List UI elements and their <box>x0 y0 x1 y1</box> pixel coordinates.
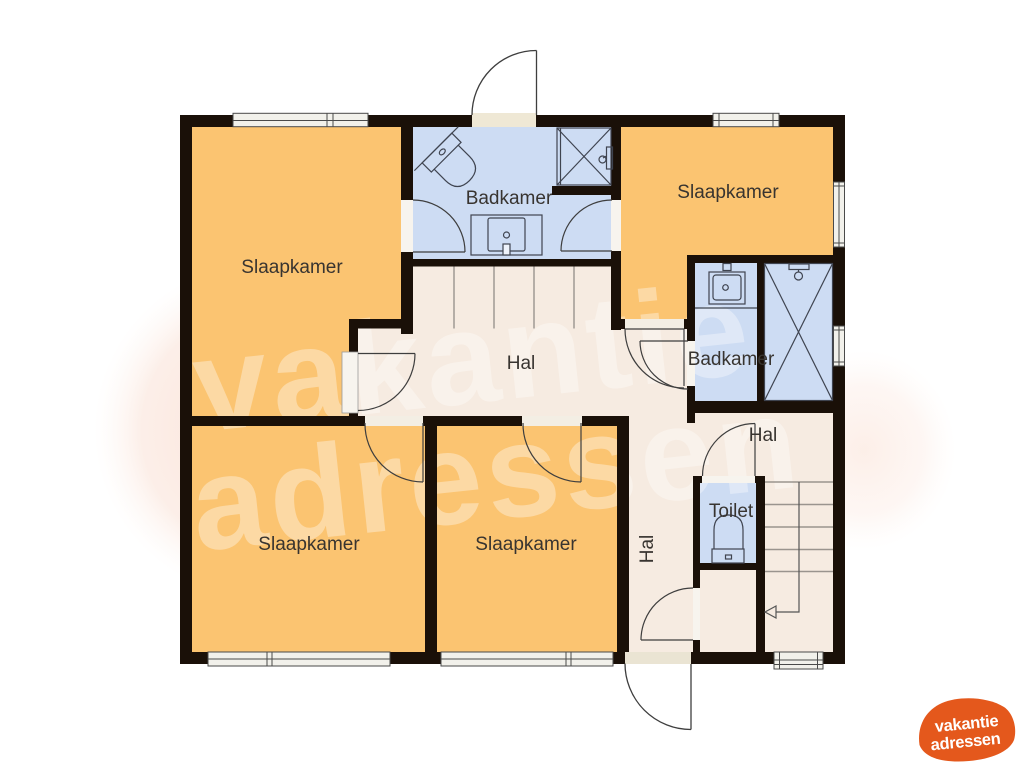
svg-text:Badkamer: Badkamer <box>688 349 775 370</box>
svg-text:Slaapkamer: Slaapkamer <box>677 182 779 203</box>
svg-text:Hal: Hal <box>637 535 658 564</box>
svg-text:Slaapkamer: Slaapkamer <box>241 257 343 278</box>
svg-text:Slaapkamer: Slaapkamer <box>258 534 360 555</box>
svg-text:Hal: Hal <box>749 425 778 446</box>
svg-text:Toilet: Toilet <box>709 501 754 522</box>
svg-text:Hal: Hal <box>507 353 536 374</box>
svg-text:Badkamer: Badkamer <box>466 188 553 209</box>
svg-text:Slaapkamer: Slaapkamer <box>475 534 577 555</box>
